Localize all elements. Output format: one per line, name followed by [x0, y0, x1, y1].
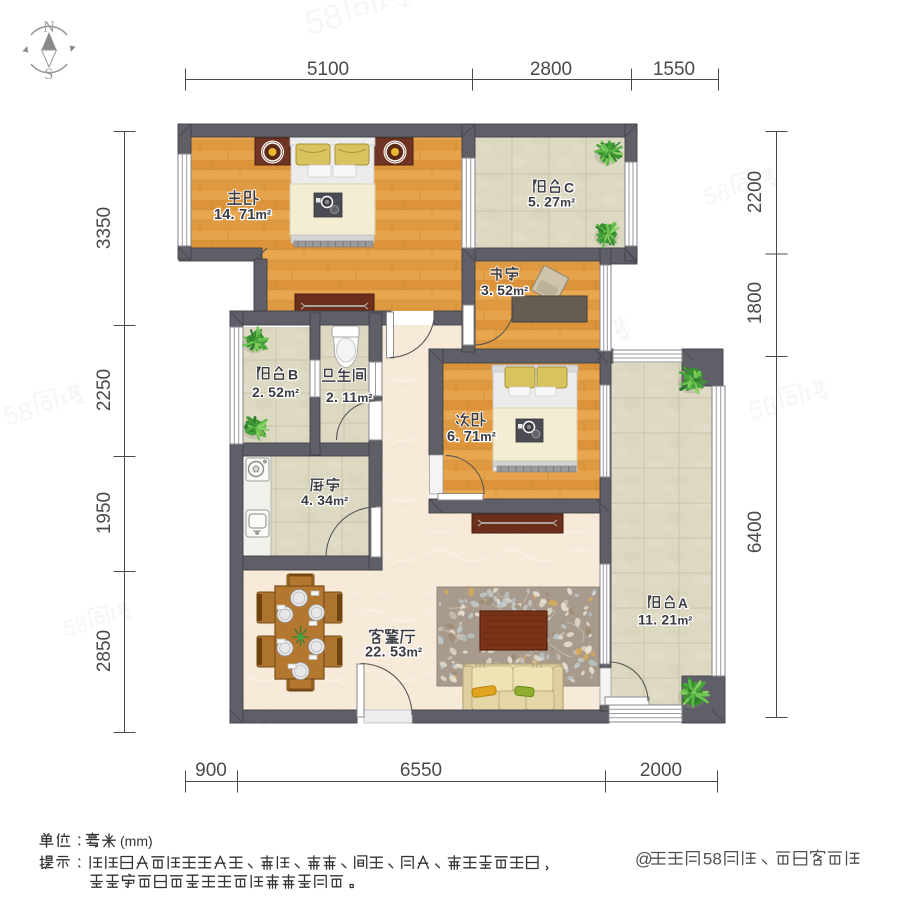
svg-text:22. 53m²: 22. 53m²: [365, 645, 422, 661]
svg-text:(mm): (mm): [120, 833, 153, 849]
svg-text:C: C: [564, 180, 574, 196]
svg-text:1550: 1550: [653, 59, 695, 80]
svg-text:4. 34m²: 4. 34m²: [301, 492, 348, 508]
svg-text:2850: 2850: [94, 630, 115, 672]
svg-text:3350: 3350: [94, 207, 115, 249]
svg-text:B: B: [288, 367, 298, 383]
svg-text:2250: 2250: [94, 369, 115, 411]
svg-text:1950: 1950: [94, 492, 115, 534]
svg-text:2. 11m²: 2. 11m²: [326, 389, 372, 405]
svg-text:@: @: [635, 849, 653, 869]
svg-text:900: 900: [195, 760, 227, 781]
svg-text:5100: 5100: [307, 59, 349, 80]
svg-text:6. 71m²: 6. 71m²: [447, 429, 496, 445]
svg-text:2200: 2200: [745, 171, 766, 213]
svg-text:11. 21m²: 11. 21m²: [638, 612, 692, 628]
svg-text:N: N: [43, 19, 55, 36]
svg-text:5. 27m²: 5. 27m²: [528, 194, 575, 210]
svg-text:6400: 6400: [745, 511, 766, 553]
svg-text:2000: 2000: [640, 760, 682, 781]
svg-text:58: 58: [703, 850, 722, 869]
svg-text:6550: 6550: [400, 760, 442, 781]
svg-text:14. 71m²: 14. 71m²: [214, 207, 271, 223]
svg-text:1800: 1800: [745, 282, 766, 324]
svg-text:2800: 2800: [530, 59, 572, 80]
svg-text:2. 52m²: 2. 52m²: [252, 384, 299, 400]
svg-text:A: A: [678, 596, 688, 611]
svg-text:S: S: [45, 66, 54, 83]
svg-text:3. 52m²: 3. 52m²: [481, 282, 528, 298]
